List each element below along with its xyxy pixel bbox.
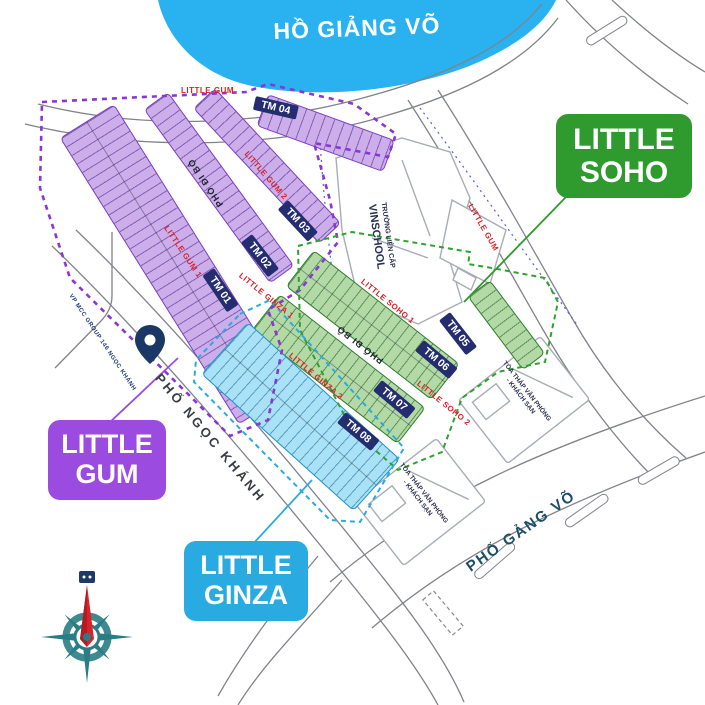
callout-little-ginza: LITTLE GINZA (184, 541, 308, 621)
callout-little-gum: LITTLE GUM (48, 420, 166, 500)
site-plan-map: HỒ GIẢNG VÕ LITTLE GUM LITTLE GUM 1 LITT… (0, 0, 705, 705)
callout-little-soho-line1: LITTLE (556, 123, 692, 156)
callout-little-gum-line2: GUM (48, 460, 166, 490)
lane-marking (637, 455, 681, 486)
road-northeast-a (612, 0, 705, 72)
lane-markings (473, 15, 681, 581)
road-northeast-b (566, 0, 688, 104)
street-little-gum-top: LITTLE GUM (181, 86, 234, 95)
callout-little-gum-line1: LITTLE (48, 430, 166, 460)
callout-little-ginza-line2: GINZA (184, 581, 308, 611)
crosswalk (423, 591, 463, 635)
callout-little-soho: LITTLE SOHO (556, 114, 692, 198)
lake-shape (158, 0, 556, 92)
callout-little-ginza-line1: LITTLE (184, 551, 308, 581)
callout-little-soho-line2: SOHO (556, 156, 692, 189)
